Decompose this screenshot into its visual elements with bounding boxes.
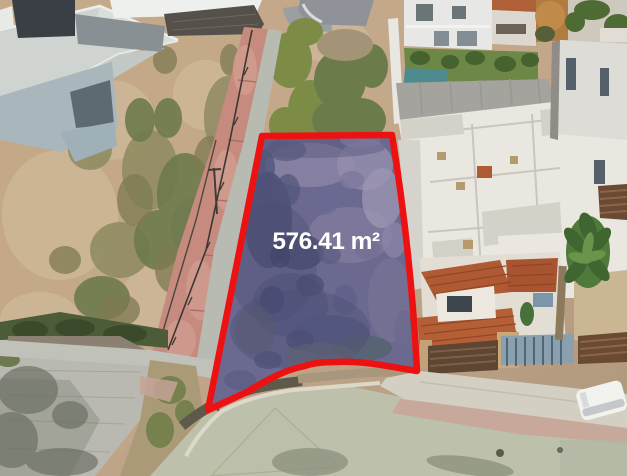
svg-text:576.41 m²: 576.41 m² (272, 228, 380, 255)
